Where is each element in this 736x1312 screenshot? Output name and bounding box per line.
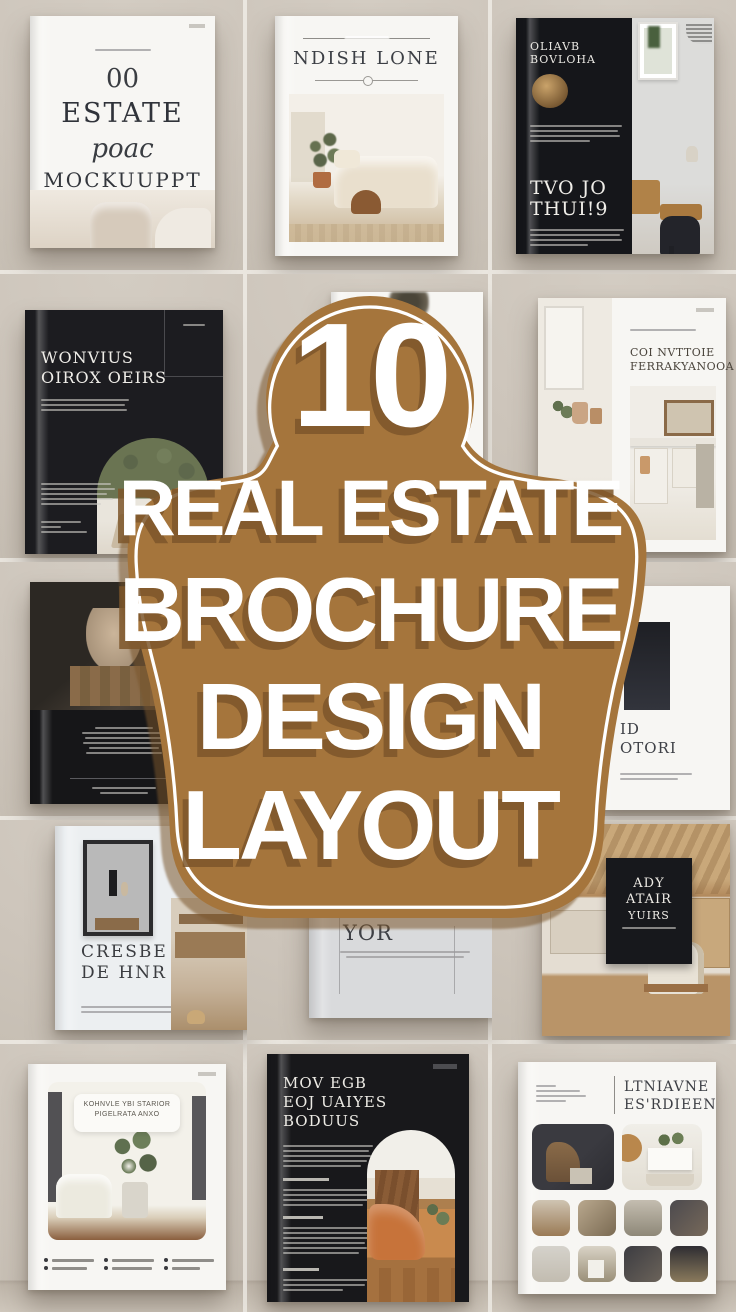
cover-photo-plant-room: KOHNVLE YBI STARIOR PIGELRATA ANXO [48,1082,206,1240]
tile-r5c3: LTNIAVNE ES'RDIEEN [492,1044,736,1312]
kicker-bar [275,33,458,41]
paragraph-1-bars [283,1142,375,1170]
subheading-1 [283,1178,329,1181]
brochure-mov-egb: MOV EGB EOJ UAIYES BODUUS [267,1054,469,1302]
main-title: LTNIAVNE ES'RDIEEN [624,1078,717,1114]
vase-object [686,146,698,162]
round-wood-object [622,1134,642,1162]
arch-photo-chair [367,1130,455,1302]
grid-photo-attic [532,1124,614,1190]
framed-art [638,22,678,80]
paragraph-2-bars [283,1186,375,1209]
brochure-oliavb: OLIAVB BOVLOHA TVO JO THUI!9 [516,18,714,254]
badge-line-2: BROCHURE [58,558,682,664]
subheading-3 [283,1268,319,1271]
cover-title: ESTATE [30,98,215,129]
plant-stand [122,1182,148,1218]
stool-leg [691,246,696,254]
sofa [56,1174,112,1218]
title-line2: THUI!9 [530,199,608,220]
tile-r1c2: NDISH LONE [247,0,488,270]
subheading-2 [283,1216,323,1219]
sofa-curve-shape [155,208,211,248]
grid-photo-shelf [622,1124,702,1190]
label-line2: PIGELRATA ANXO [74,1111,180,1118]
basket [187,1010,205,1024]
title-line2: EOJ UAIYES [283,1093,387,1112]
label-line1: KOHNVLE YBI STARIOR [74,1101,180,1108]
badge-line-4: LAYOUT [58,770,682,880]
rug-texture [289,224,444,242]
badge-line-1: REAL ESTATE [58,458,682,558]
white-box-label [648,1148,692,1170]
bullet-col [164,1254,214,1274]
title-line3: BODUUS [283,1112,387,1131]
dark-shelf-right [192,1096,206,1200]
tile-r5c2: MOV EGB EOJ UAIYES BODUUS [247,1044,488,1312]
grid-photo-small-6 [578,1246,616,1282]
cover-number: 00 [30,64,215,94]
plant-pot [313,172,331,188]
main-title: TVO JO THUI!9 [530,178,608,220]
basket-base [646,1174,694,1186]
armchair-shape [90,202,152,248]
shelf-plants [654,1132,688,1148]
cover-kicker-bar [30,46,215,54]
title-line2: ES'RDIEEN [624,1096,717,1114]
badge-line-3: DESIGN [58,664,682,770]
cover-title: NDISH LONE [275,48,458,69]
paragraph-3-bars [283,1224,375,1257]
title-line1: TVO JO [530,178,608,199]
tile-r1c1: 00 ESTATE poac MOCKUUPPT [0,0,243,270]
header-divider [614,1076,615,1114]
footer-paragraph-bars [530,226,626,249]
gold-circle-photo [532,74,568,108]
main-title: MOV EGB EOJ UAIYES BODUUS [283,1074,387,1131]
cover-photo-livingroom [289,94,444,242]
grid-photo-small-2 [578,1200,616,1236]
brochure-kohnvle: KOHNVLE YBI STARIOR PIGELRATA ANXO [28,1064,226,1290]
pillow-shape [334,150,360,168]
page-tag-bar [696,308,714,312]
pin-graphic: 00 ESTATE poac MOCKUUPPT NDISH LONE [0,0,736,1312]
wood-floor [367,1268,455,1302]
page-number-mark [189,24,205,28]
title-line1: MOV EGB [283,1074,387,1093]
bullet-col [44,1254,94,1274]
stool-table [351,190,381,214]
kicker-line1: OLIAVB [530,40,596,53]
paragraph-4-bars [283,1276,375,1294]
dark-appliance [696,444,714,508]
tile-r5c1: KOHNVLE YBI STARIOR PIGELRATA ANXO [0,1044,243,1312]
title-line2: DE HNR [81,963,168,984]
stool-leg [669,246,674,254]
grid-photo-small-4 [670,1200,708,1236]
cover-subtitle: MOCKUUPPT [30,168,215,192]
header-left-bars [536,1082,596,1105]
kicker-line2: BOVLOHA [530,53,596,66]
badge-number: 10 [58,302,682,450]
plant [419,1192,453,1236]
kicker-block: OLIAVB BOVLOHA [530,40,596,66]
attic-object [570,1168,592,1184]
bullet-columns [44,1254,214,1274]
grid-photo-small-7 [624,1246,662,1282]
page-tag-bar [198,1072,216,1076]
mini-poster [588,1260,604,1278]
chair-frame [644,984,708,992]
rule-ornament [363,76,373,86]
grid-photo-small-8 [670,1246,708,1282]
grid-photo-small-3 [624,1200,662,1236]
brochure-estate-mockup: 00 ESTATE poac MOCKUUPPT [30,16,215,248]
wood-console [632,180,660,214]
brochure-ltniavne: LTNIAVNE ES'RDIEEN [518,1062,716,1294]
title-badge: 10 REAL ESTATE BROCHURE DESIGN LAYOUT [58,288,682,950]
cover-photo-armchair [30,190,215,248]
cover-script-word: poac [30,134,215,164]
bullet-col [104,1254,154,1274]
tile-r1c3: OLIAVB BOVLOHA TVO JO THUI!9 [492,0,736,270]
corner-tag-bar [433,1064,457,1069]
brochure-ndish-lone: NDISH LONE [275,16,458,256]
badge-text: 10 REAL ESTATE BROCHURE DESIGN LAYOUT [58,288,682,880]
vent-grille [686,24,712,44]
title-line1: LTNIAVNE [624,1078,717,1096]
grid-photo-small-1 [532,1200,570,1236]
grid-photo-small-5 [532,1246,570,1282]
cover-photo-stool [632,18,714,254]
label-box: KOHNVLE YBI STARIOR PIGELRATA ANXO [74,1094,180,1132]
intro-paragraph-bars [530,122,624,145]
